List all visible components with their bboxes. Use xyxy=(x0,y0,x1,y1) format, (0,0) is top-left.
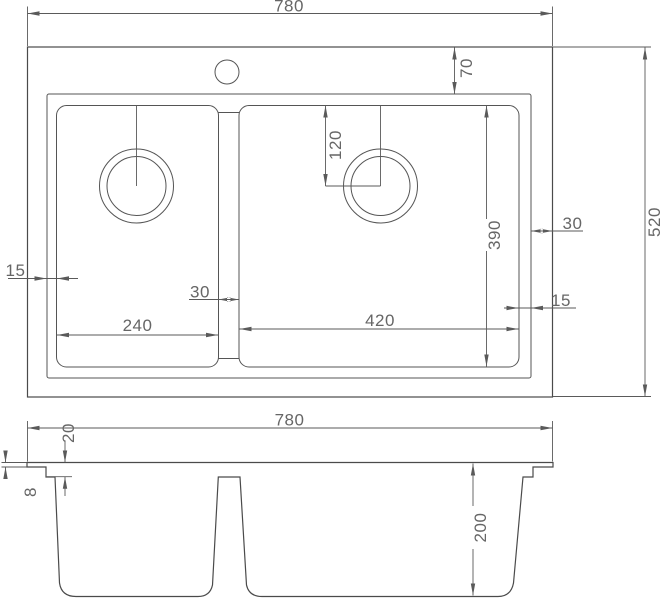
dim-flange-thickness: 8 xyxy=(2,451,41,497)
dim-label-200: 200 xyxy=(471,513,490,543)
dim-overall-width-front: 780 xyxy=(28,411,553,462)
divider-web xyxy=(219,113,240,359)
dim-label-15-left: 15 xyxy=(6,261,26,280)
dim-rim-to-outer-right: 30 xyxy=(531,214,583,233)
dim-label-15-right: 15 xyxy=(551,291,571,310)
dim-label-70: 70 xyxy=(457,58,476,78)
dim-arrows xyxy=(3,451,7,480)
dim-label-120: 120 xyxy=(326,130,345,160)
dim-arrows xyxy=(63,451,67,489)
left-drain xyxy=(100,106,174,224)
dim-label-8: 8 xyxy=(21,487,40,497)
dim-right-bowl-width: 420 xyxy=(240,311,519,331)
top-view: 780 70 120 390 520 3 xyxy=(6,0,661,397)
faucet-hole xyxy=(215,60,239,84)
outer-deck-rect xyxy=(28,47,553,397)
dim-label-520: 520 xyxy=(645,207,661,237)
dim-label-780-top: 780 xyxy=(274,0,304,16)
drawing-svg: 780 70 120 390 520 3 xyxy=(0,0,661,600)
dim-label-240: 240 xyxy=(123,316,153,335)
sink-technical-drawing: 780 70 120 390 520 3 xyxy=(0,0,661,600)
dim-line xyxy=(46,442,72,497)
dim-label-30-right: 30 xyxy=(563,214,583,233)
dim-bowl-depth: 200 xyxy=(471,464,490,596)
dim-rim-drop: 20 xyxy=(46,423,78,496)
dim-divider-width: 30 xyxy=(189,283,239,302)
dim-left-bowl-width: 240 xyxy=(57,316,218,337)
dim-label-30-divider: 30 xyxy=(190,283,210,302)
dim-bowl-to-rim-left: 15 xyxy=(6,261,79,281)
dim-drain-offset: 120 xyxy=(323,106,345,187)
dim-label-420: 420 xyxy=(365,311,395,330)
dim-bowl-to-rim-right: 15 xyxy=(504,291,576,310)
front-view: 780 20 8 200 xyxy=(2,411,554,597)
dim-label-390: 390 xyxy=(485,220,504,250)
dim-overall-width-top: 780 xyxy=(28,0,553,46)
right-drain xyxy=(326,106,418,224)
dim-top-edge-to-rim: 70 xyxy=(452,48,476,95)
dim-label-20: 20 xyxy=(59,423,78,443)
dim-bowl-front-to-back: 390 xyxy=(484,106,504,367)
dim-label-780-front: 780 xyxy=(275,411,305,430)
